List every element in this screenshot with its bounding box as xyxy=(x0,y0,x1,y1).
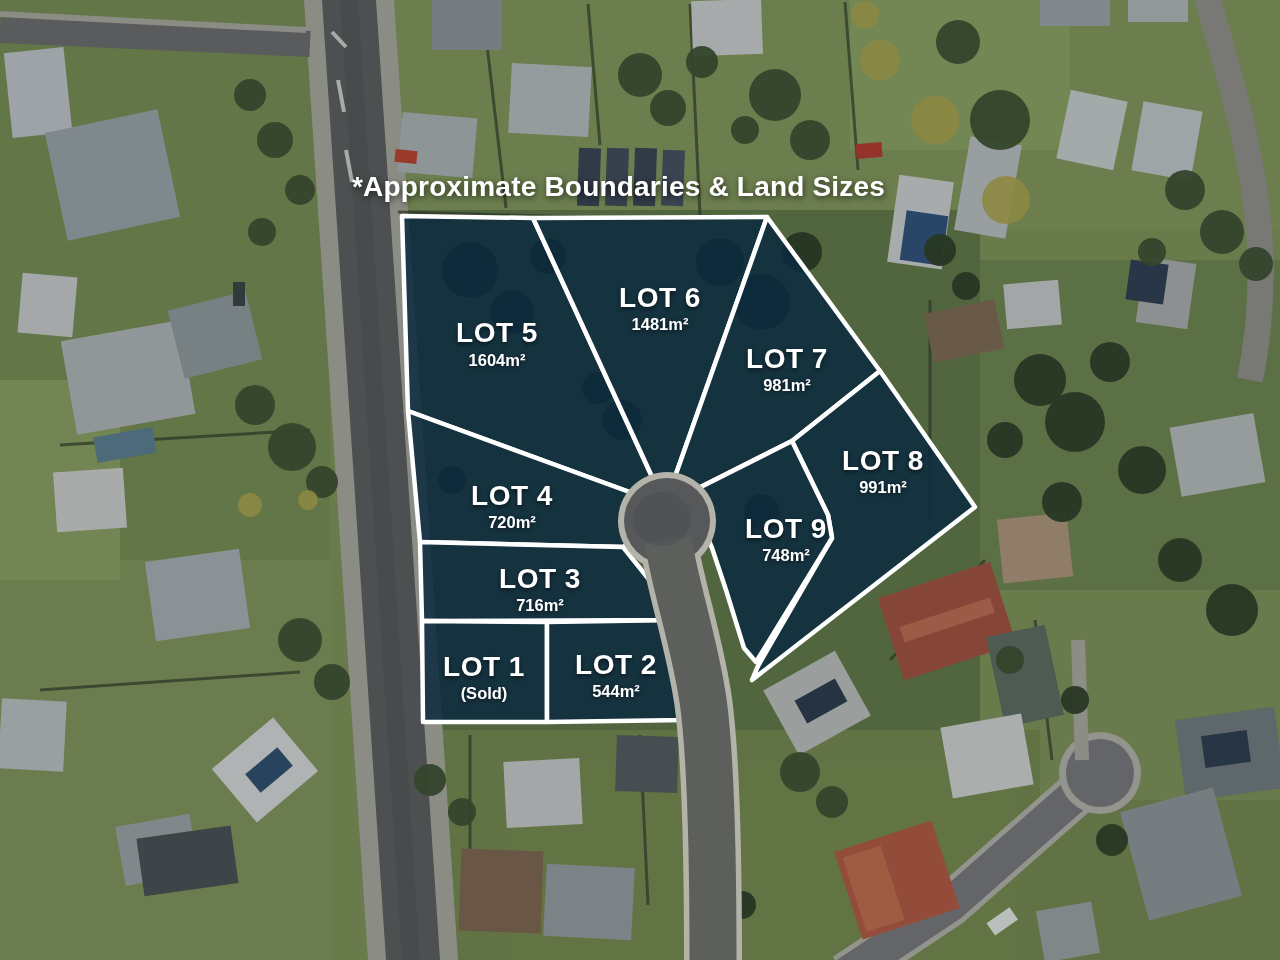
lot-4-label: LOT 4 xyxy=(471,480,553,511)
lot-8-area: 991m² xyxy=(859,478,907,496)
lot-4-area: 720m² xyxy=(488,513,536,531)
lot-2-area: 544m² xyxy=(592,682,640,700)
lot-5-area: 1604m² xyxy=(469,351,526,369)
subdivision-flyer: *Approximate Boundaries & Land Sizes LOT… xyxy=(0,0,1280,960)
lot-1-area: (Sold) xyxy=(461,684,508,702)
lot-3-area: 716m² xyxy=(516,596,564,614)
lot-1-label: LOT 1 xyxy=(443,651,525,682)
lot-6-area: 1481m² xyxy=(632,315,689,333)
map-title: *Approximate Boundaries & Land Sizes xyxy=(352,171,885,202)
lot-7-area: 981m² xyxy=(763,376,811,394)
lot-9-area: 748m² xyxy=(762,546,810,564)
lot-6-label: LOT 6 xyxy=(619,282,701,313)
lot-5-label: LOT 5 xyxy=(456,317,538,348)
lot-9-label: LOT 9 xyxy=(745,513,827,544)
lot-8-label: LOT 8 xyxy=(842,445,924,476)
lot-3-label: LOT 3 xyxy=(499,563,581,594)
aerial-map: *Approximate Boundaries & Land Sizes LOT… xyxy=(0,0,1280,960)
lot-7-label: LOT 7 xyxy=(746,343,828,374)
lot-2-label: LOT 2 xyxy=(575,649,657,680)
